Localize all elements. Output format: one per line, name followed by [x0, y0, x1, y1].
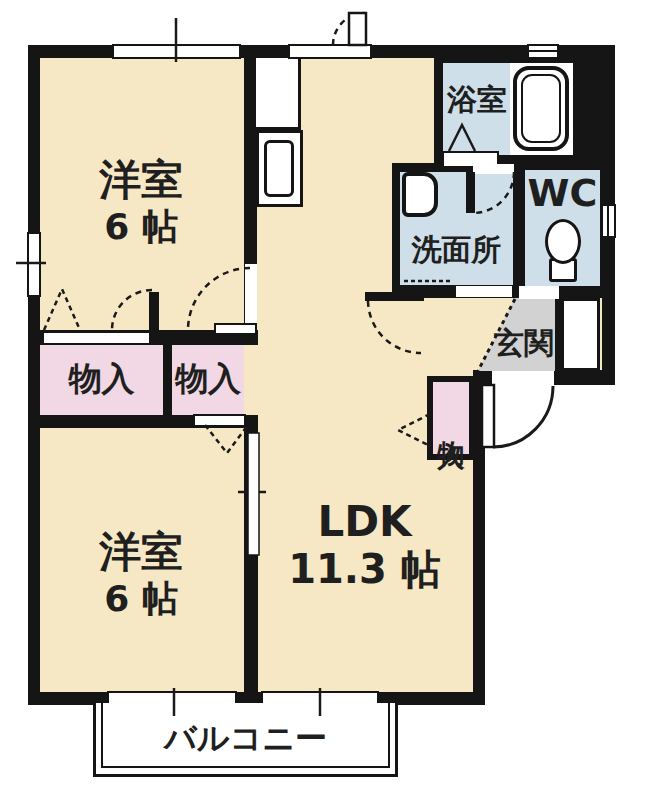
- closet-top-left-sill: [42, 331, 151, 345]
- ldk-name: LDK: [256, 500, 473, 544]
- bedroom-top-name: 洋室: [38, 158, 244, 202]
- back-door-sill: [288, 44, 372, 59]
- kitchen-sink: [264, 140, 294, 197]
- washroom-door-gap: [473, 164, 514, 174]
- back-door-leaf: [349, 13, 366, 45]
- window-bath-mullion: [529, 50, 557, 52]
- bedroom-bottom-size: 6 帖: [38, 580, 244, 618]
- window-wc-mullion: [607, 206, 609, 236]
- bedroom1-door-gap: [245, 264, 257, 332]
- entrance-door-arc: [493, 386, 553, 447]
- bedroom-bottom-name: 洋室: [38, 530, 244, 574]
- window-top: [112, 44, 241, 59]
- washing-machine-pan: [402, 172, 438, 217]
- wall-closet-divider: [163, 345, 172, 415]
- kitchen-counter: [256, 58, 301, 130]
- washroom-hall-opening: [455, 285, 513, 298]
- toilet-bowl: [545, 219, 581, 264]
- bedroom-top-label: 洋室 6 帖: [38, 158, 244, 246]
- entrance-label: 玄関: [488, 327, 560, 359]
- shoe-cabinet: [561, 298, 600, 371]
- bathtub-inner: [521, 74, 561, 143]
- wc-door-gap: [519, 286, 559, 299]
- bedroom-top-size: 6 帖: [38, 208, 244, 246]
- ldk-label: LDK 11.3 帖: [256, 500, 473, 590]
- balcony-label: バルコニー: [93, 722, 398, 756]
- hall-door-lintel: [365, 292, 424, 301]
- entrance-door-sill: [492, 371, 554, 386]
- back-door-arc: [333, 13, 365, 45]
- floor-plan: 洋室 6 帖 洋室 6 帖 LDK 11.3 帖 浴室 洗面所 WC 玄関 バル…: [0, 0, 653, 800]
- ldk-size: 11.3 帖: [256, 548, 473, 590]
- closet-top-right-label: 物入: [172, 362, 244, 397]
- bedroom-bottom-label: 洋室 6 帖: [38, 530, 244, 618]
- closet-ldk-label: 物入: [433, 384, 469, 454]
- wc-label: WC: [525, 174, 600, 214]
- closet-top-right-sill: [193, 414, 246, 427]
- closet-top-left-label: 物入: [40, 362, 163, 397]
- washroom-label: 洗面所: [400, 234, 513, 266]
- bath-label: 浴室: [437, 84, 517, 116]
